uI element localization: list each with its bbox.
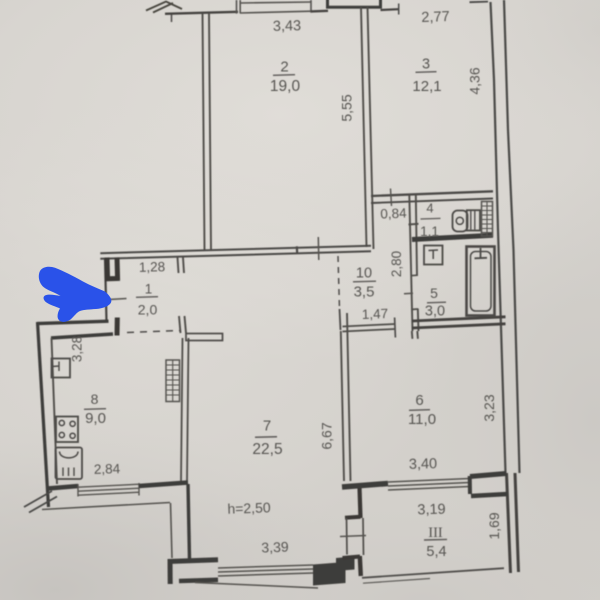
svg-text:2: 2 [280,59,288,76]
svg-text:12,1: 12,1 [412,78,441,95]
svg-text:h=2,50: h=2,50 [227,499,271,517]
svg-text:11,0: 11,0 [408,411,436,428]
svg-text:4: 4 [426,201,433,216]
svg-text:7: 7 [263,418,271,435]
svg-text:1,69: 1,69 [486,512,502,539]
svg-text:2,0: 2,0 [138,302,158,318]
svg-text:9,0: 9,0 [85,410,106,427]
svg-text:III: III [428,525,443,541]
svg-text:6,67: 6,67 [319,422,335,449]
svg-text:5: 5 [430,285,438,301]
svg-text:5,55: 5,55 [339,94,355,121]
svg-text:2,80: 2,80 [389,251,404,277]
svg-text:1,47: 1,47 [362,306,389,322]
svg-text:19,0: 19,0 [270,78,301,95]
svg-text:1: 1 [145,282,153,297]
svg-text:3,39: 3,39 [261,539,289,556]
svg-text:3: 3 [422,57,430,73]
svg-text:3,43: 3,43 [273,18,302,35]
svg-text:3,23: 3,23 [481,394,497,421]
svg-text:3,0: 3,0 [425,304,445,320]
svg-text:3,28: 3,28 [70,336,85,362]
svg-text:2,77: 2,77 [421,9,450,26]
svg-text:1,1: 1,1 [420,224,439,239]
svg-text:4,36: 4,36 [467,67,483,94]
svg-text:22,5: 22,5 [252,441,282,458]
svg-text:10: 10 [356,266,372,282]
svg-text:1,28: 1,28 [139,259,166,275]
svg-text:5,4: 5,4 [426,544,446,560]
svg-text:3,5: 3,5 [354,284,375,301]
svg-text:3,40: 3,40 [409,456,438,473]
svg-text:3,19: 3,19 [417,502,446,519]
svg-text:8: 8 [91,391,99,407]
svg-text:6: 6 [415,392,423,409]
svg-text:0,84: 0,84 [380,206,407,222]
svg-text:2,84: 2,84 [94,461,121,477]
